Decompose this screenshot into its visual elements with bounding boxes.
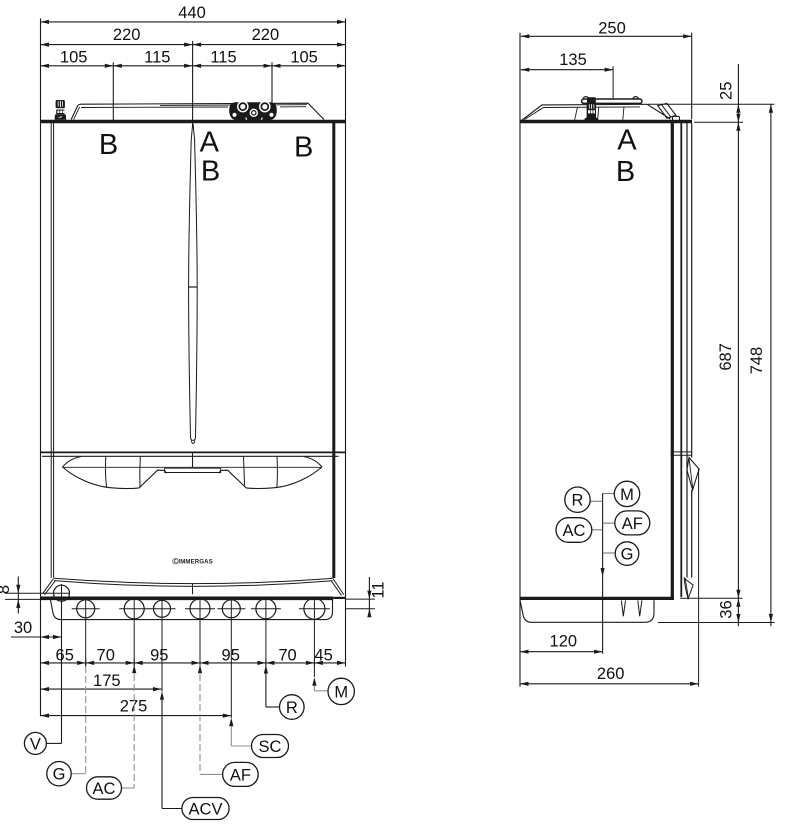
svg-text:M: M: [620, 486, 634, 504]
svg-text:R: R: [286, 699, 298, 717]
svg-text:A: A: [617, 124, 637, 156]
svg-text:M: M: [334, 683, 348, 701]
svg-text:275: 275: [120, 697, 148, 715]
svg-text:G: G: [53, 766, 66, 784]
svg-text:105: 105: [290, 49, 318, 67]
svg-text:95: 95: [150, 646, 168, 664]
svg-text:440: 440: [178, 4, 206, 22]
svg-text:70: 70: [278, 646, 296, 664]
svg-text:11: 11: [370, 581, 388, 598]
svg-text:687: 687: [717, 343, 735, 371]
svg-text:SC: SC: [259, 738, 282, 756]
svg-text:ⒸIMMERGAS: ⒸIMMERGAS: [172, 558, 213, 566]
svg-text:A: A: [200, 127, 220, 159]
svg-text:AF: AF: [230, 766, 251, 784]
svg-text:25: 25: [718, 82, 736, 100]
svg-text:748: 748: [748, 347, 766, 375]
svg-text:G: G: [621, 546, 634, 564]
svg-text:B: B: [294, 132, 313, 164]
svg-text:120: 120: [550, 633, 578, 651]
svg-text:36: 36: [718, 600, 736, 618]
svg-text:30: 30: [14, 619, 32, 637]
svg-text:V: V: [30, 735, 41, 753]
svg-text:B: B: [616, 156, 635, 188]
svg-text:95: 95: [222, 646, 240, 664]
svg-text:115: 115: [210, 49, 236, 67]
svg-text:105: 105: [60, 49, 88, 67]
svg-text:260: 260: [597, 665, 625, 683]
svg-text:AF: AF: [622, 515, 643, 533]
svg-text:ACV: ACV: [189, 800, 223, 818]
svg-text:45: 45: [314, 646, 332, 664]
svg-text:220: 220: [113, 26, 141, 44]
svg-text:B: B: [99, 129, 118, 161]
svg-text:175: 175: [93, 672, 121, 690]
svg-text:220: 220: [252, 26, 280, 44]
svg-text:R: R: [572, 492, 584, 510]
svg-text:AC: AC: [562, 522, 585, 540]
svg-text:B: B: [201, 156, 220, 188]
svg-text:115: 115: [144, 49, 170, 67]
svg-text:70: 70: [97, 646, 115, 664]
svg-text:65: 65: [56, 646, 74, 664]
svg-text:8: 8: [0, 585, 13, 594]
svg-text:250: 250: [598, 19, 626, 37]
svg-text:AC: AC: [93, 780, 116, 798]
svg-text:135: 135: [559, 51, 587, 69]
